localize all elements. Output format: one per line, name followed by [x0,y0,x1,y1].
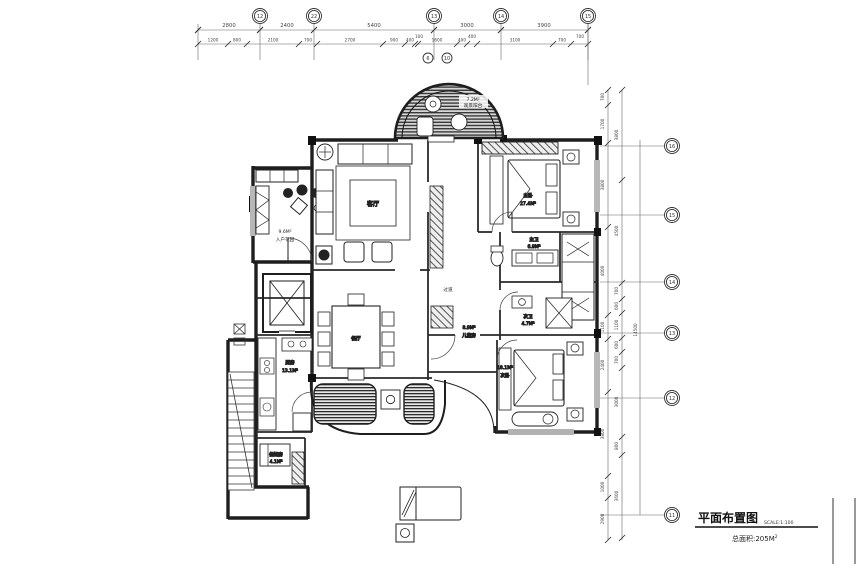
room-area-kitchen: 13.1M² [282,368,298,374]
dining-room: 餐厅 [318,294,394,380]
dim-value: 900 [390,38,398,43]
drawing-scale: SCALE:1:100 [764,520,794,526]
master-bedroom: 主卧 27.4M² [482,142,579,232]
room-label-dining: 餐厅 [351,335,361,342]
balcony-bottom [311,380,494,434]
grid-label: 10 [444,56,450,62]
dim-value: 700 [614,356,619,364]
room-label-entry-garden: 入户花园 [276,236,295,243]
dim-value-total: 14500 [633,323,638,337]
balcony-top: 7.2M² 观景阳台 [395,84,503,142]
dim-value: 700 [600,93,605,101]
dim-value: 3800 [600,179,605,190]
grid-label: 14 [669,280,675,286]
dim-value: 700 [304,38,312,43]
room-label-maid: 保姆房 [269,451,283,458]
master-bathroom: 主卫 6.9M² [491,236,558,266]
dim-value: 2900 [600,513,605,524]
room-label-kitchen: 厨房 [285,359,295,366]
grid-label: 13 [431,14,437,20]
kids-room: 8.9M² 儿童房 [431,306,480,359]
dim-value: 800 [614,442,619,450]
dim-value: 2400 [280,23,294,29]
room-label-balcony: 观景阳台 [464,102,483,109]
dim-value: 3100 [510,38,521,43]
dim-value: 100 [415,34,423,39]
living-room: 客厅 [316,144,443,268]
grid-label: 14 [498,14,504,20]
grid-bubbles-top [253,9,596,64]
grid-label: 13 [669,331,675,337]
kitchen: 厨房 13.1M² [258,338,312,431]
room-label-second-bedroom: 次卧 [500,372,510,379]
drawing-title: 平面布置图 [698,510,758,525]
grid-bubble-labels-right: 16 15 14 13 12 11 [669,144,675,519]
stairs [228,324,254,490]
dim-value: 2100 [268,38,279,43]
grid-label: 11 [669,513,675,519]
dim-value: 1200 [208,38,219,43]
dim-value: 700 [614,287,619,295]
room-area-maid: 4.1M² [269,459,282,465]
grid-label: 6 [426,56,429,62]
detail-sketch [396,487,461,542]
room-area-kids-room: 8.9M² [462,325,475,331]
room-label-master-bedroom: 主卧 [523,192,533,199]
floorplan-drawing: 12 22 13 14 15 6 10 2800 2400 5400 3000 … [0,0,860,573]
dim-value: 2800 [222,23,236,29]
room-label-second-bath: 次卫 [523,313,533,320]
dim-value: 2400 [600,359,605,370]
grid-label: 15 [669,213,675,219]
dimension-chain-right [600,87,664,543]
grid-label: 12 [669,396,675,402]
dim-value: 400 [458,38,466,43]
dim-value: 3000 [614,396,619,407]
dim-value: 600 [614,341,619,349]
title-block: 平面布置图 SCALE:1:100 总面积:205M2 [695,498,855,564]
room-area-second-bath: 4.7M² [521,321,534,327]
corridor: 过道 [443,286,453,293]
elevator [263,274,311,332]
drawing-sheet: 12 22 13 14 15 6 10 2800 2400 5400 3000 … [0,0,860,573]
room-label-corridor: 过道 [443,286,453,293]
dim-value: 400 [406,38,414,43]
room-area-master-bedroom: 27.4M² [520,201,536,207]
dim-value: 3900 [537,23,551,29]
room-label-master-bath: 主卫 [529,236,539,243]
dim-value: 700 [576,34,584,39]
second-bathroom: 次卫 4.7M² [500,292,572,328]
room-area-second-bedroom: 18.1M² [497,365,513,371]
dim-value: 1100 [614,319,619,330]
dim-value: 1600 [432,38,443,43]
dim-value: 4000 [600,265,605,276]
room-area-balcony: 7.2M² [466,97,479,103]
dimension-values-top: 2800 2400 5400 3000 3900 1200 800 2100 7… [208,23,585,43]
grid-label: 22 [311,14,317,20]
dim-value: 1700 [600,118,605,129]
dimension-chain-top [195,23,591,85]
room-label-kids-room: 儿童房 [462,332,476,339]
drawing-area-note: 总面积:205M2 [732,534,778,543]
dim-value: 2700 [345,38,356,43]
dim-value: 4500 [614,225,619,236]
grid-label: 15 [585,14,591,20]
room-area-master-bath: 6.9M² [527,244,540,250]
dim-value: 400 [468,34,476,39]
dim-value: 600 [614,302,619,310]
room-label-living: 客厅 [367,200,379,208]
dim-value: 3600 [614,490,619,501]
maid-room: 保姆房 4.1M² [260,444,304,484]
second-bedroom: 18.1M² 次卧 [497,340,583,426]
grid-label: 16 [669,144,675,150]
grid-label: 12 [257,14,263,20]
dim-value: 800 [233,38,241,43]
dim-value: 3800 [614,129,619,140]
room-area-entry-garden: 9.6M² [278,229,291,235]
dim-value: 5400 [367,23,381,29]
dim-value: 3000 [460,23,474,29]
dim-value: 700 [558,38,566,43]
dim-value: 1000 [600,481,605,492]
dimension-values-right: 700 1700 3800 4000 1100 2400 3800 1000 2… [600,93,638,525]
